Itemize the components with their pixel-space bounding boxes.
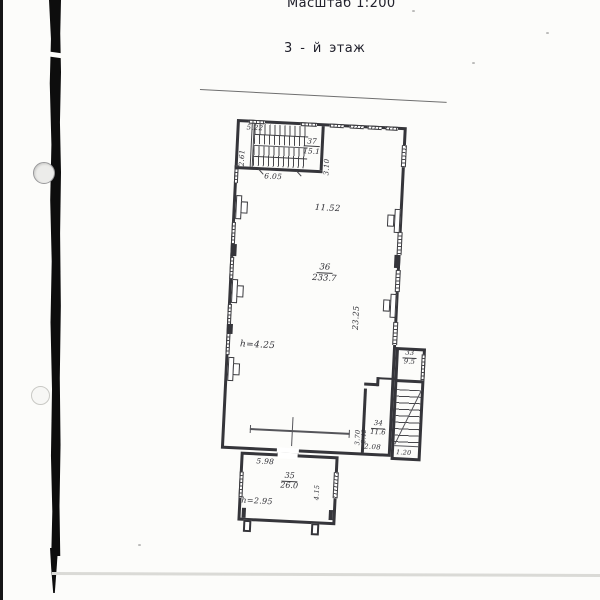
scan-speck — [412, 10, 415, 12]
window-hatch — [401, 145, 407, 167]
pilaster — [240, 201, 247, 213]
wall-pier — [241, 508, 245, 518]
room-33-area: 9.5 — [400, 358, 418, 367]
wall-pier — [394, 255, 401, 268]
dim-annex-ceiling-height: h=2.95 — [241, 496, 273, 507]
pilaster — [387, 214, 394, 226]
room-33-label: 33 9.5 — [400, 349, 419, 367]
room-37-label: 37 15.1 — [299, 137, 324, 156]
scan-speck — [138, 544, 141, 546]
dim-stairwell-bottom-width: 1.20 — [396, 448, 412, 457]
window-hatch — [330, 123, 344, 128]
wall-pier — [226, 324, 232, 334]
window-hatch — [392, 322, 398, 345]
window-hatch — [386, 126, 398, 131]
chimney-stub — [311, 523, 320, 535]
dim-stair-bottom-width: 6.05 — [264, 171, 282, 181]
scan-binding-band-tip — [50, 548, 58, 593]
punch-hole-top — [33, 162, 55, 184]
scanned-floor-plan-page: Масштаб 1:200 3 - й этаж — [0, 0, 600, 600]
room-35-label: 35 26.0 — [275, 471, 304, 491]
room34-wall-jog — [376, 377, 379, 386]
window-hatch — [395, 270, 401, 292]
dim-annex-right-depth: 4.15 — [312, 472, 321, 500]
floor-plan: 37 15.1 36 233.7 34 11.6 33 9.5 35 26.0 … — [216, 119, 452, 559]
room-34-area: 11.6 — [368, 429, 388, 438]
room-35-area: 26.0 — [275, 481, 303, 491]
dim-main-ceiling-height: h=4.25 — [240, 339, 276, 351]
room-34-label: 34 11.6 — [368, 420, 389, 438]
wall-pier — [328, 510, 332, 520]
wall-pier — [230, 244, 237, 256]
dim-main-top-width: 11.52 — [315, 203, 341, 214]
pilaster — [236, 285, 243, 297]
scan-speck — [546, 32, 549, 34]
window-hatch — [350, 124, 364, 129]
separator-line — [200, 89, 447, 103]
pilaster — [232, 363, 239, 375]
dim-annex-top-width: 5.98 — [256, 456, 274, 466]
scan-edge-line — [0, 0, 3, 600]
room-36-area: 233.7 — [307, 273, 341, 284]
dim-room34-inner: 2.42 — [360, 417, 368, 443]
dim-stair-top-width: 5.22 — [246, 123, 263, 132]
room-36-label: 36 233.7 — [307, 263, 342, 284]
scan-fold-line — [52, 572, 600, 576]
scan-binding-band — [46, 0, 61, 556]
window-hatch — [333, 472, 339, 498]
window-hatch — [420, 354, 426, 380]
punch-hole-bottom — [31, 386, 50, 405]
dim-room34-bottom-width: 2.08 — [364, 443, 381, 452]
dim-stair-hall-depth: 3.10 — [322, 147, 331, 175]
window-hatch — [397, 232, 403, 255]
scan-speck — [472, 62, 475, 64]
pilaster — [383, 299, 390, 311]
scale-label: Масштаб 1:200 — [287, 0, 396, 11]
room-37-area: 15.1 — [299, 146, 323, 156]
annex-opening — [277, 452, 297, 459]
pilaster — [389, 294, 396, 318]
floor-title: 3 - й этаж — [284, 41, 365, 56]
pilaster — [393, 209, 400, 233]
dim-stair-left-depth: 2.61 — [238, 134, 248, 166]
window-hatch — [368, 125, 382, 130]
chimney-stub — [243, 520, 252, 532]
